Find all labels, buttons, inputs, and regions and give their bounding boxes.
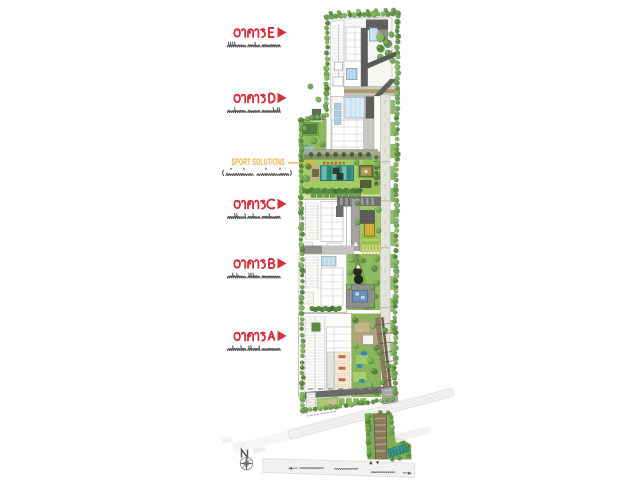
svg-text:SPORT SOLUTIONS: SPORT SOLUTIONS (232, 157, 286, 168)
